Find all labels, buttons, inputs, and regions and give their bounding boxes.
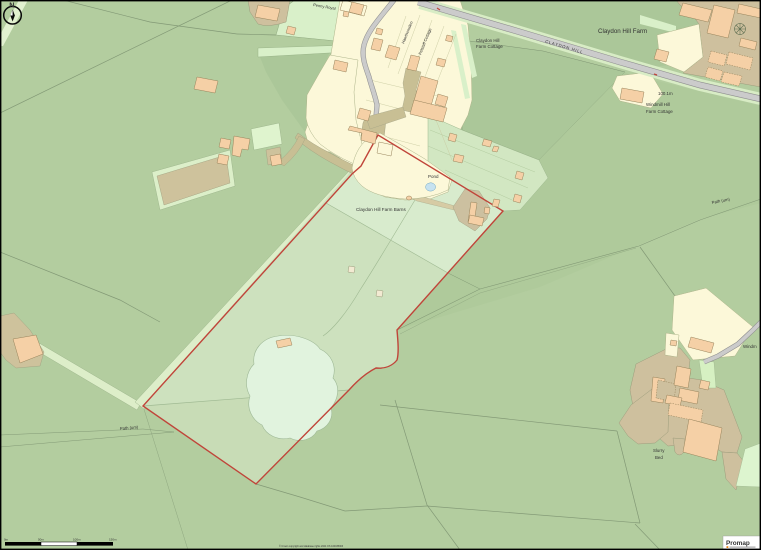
svg-text:Promap: Promap	[726, 540, 750, 547]
svg-text:Farm Cottage: Farm Cottage	[476, 44, 503, 49]
svg-text:N: N	[9, 0, 14, 9]
svg-text:100.1m: 100.1m	[658, 91, 673, 96]
svg-text:Slurry: Slurry	[653, 448, 665, 453]
svg-text:100m: 100m	[73, 538, 81, 542]
svg-text:Pond: Pond	[428, 174, 439, 179]
svg-text:150m: 150m	[109, 538, 117, 542]
svg-text:Bed: Bed	[655, 455, 663, 460]
svg-text:50m: 50m	[38, 538, 44, 542]
svg-text:0m: 0m	[4, 538, 9, 542]
svg-text:Claydon Hill Farm Barns: Claydon Hill Farm Barns	[356, 207, 406, 212]
svg-text:Windm: Windm	[743, 344, 757, 349]
svg-text:Claydon Hill: Claydon Hill	[476, 38, 499, 43]
svg-text:Farm Cottage: Farm Cottage	[646, 109, 673, 114]
svg-text:Windmill Hill: Windmill Hill	[646, 102, 670, 107]
svg-text:© Crown copyright and database: © Crown copyright and database rights 20…	[279, 545, 344, 548]
svg-text:Claydon Hill Farm: Claydon Hill Farm	[598, 28, 647, 35]
